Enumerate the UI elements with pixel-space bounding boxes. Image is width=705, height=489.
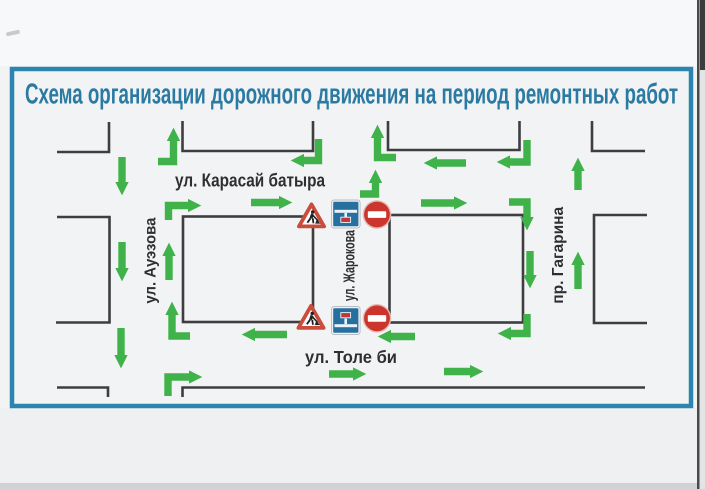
svg-text:Схема организации дорожного дв: Схема организации дорожного движения на …: [25, 79, 678, 111]
svg-text:ул. Жарокова: ул. Жарокова: [340, 230, 358, 301]
svg-text:ул. Толе би: ул. Толе би: [305, 346, 397, 367]
svg-text:ул. Ауэзова: ул. Ауэзова: [142, 217, 160, 303]
svg-text:пр. Гагарина: пр. Гагарина: [550, 207, 567, 304]
svg-text:ул. Карасай батыра: ул. Карасай батыра: [175, 170, 326, 190]
